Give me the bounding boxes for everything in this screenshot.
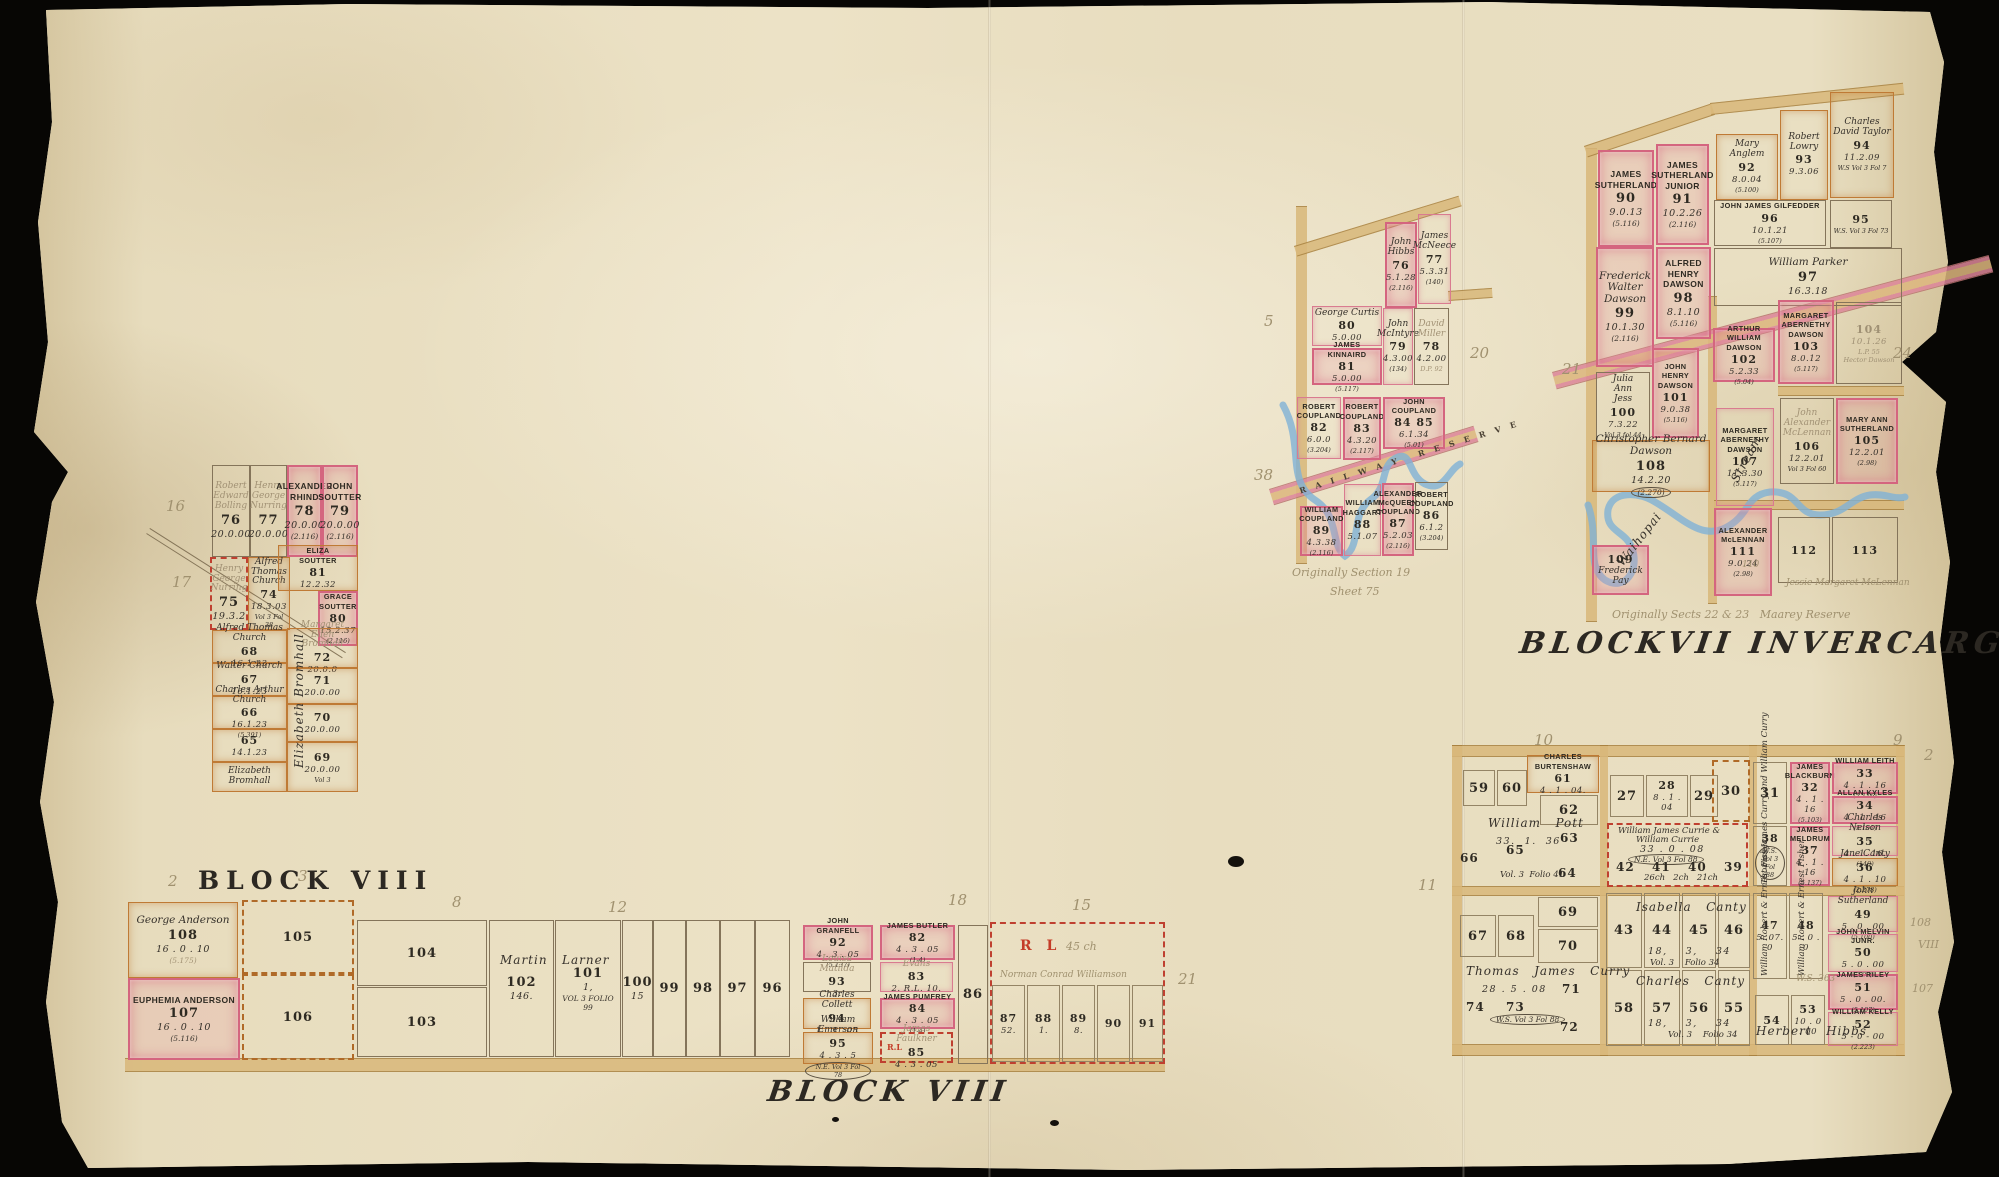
block-viii-grid-parcel-38: 38W.S. Vol 3 Fol 88 — [1753, 826, 1787, 886]
block-west-parcel-66: Charles Arthur Church6616.1.23(5.391) — [212, 696, 287, 729]
parcel-area: 5.2.03 — [1383, 531, 1413, 541]
parcel-owner: John Hibbs — [1388, 238, 1415, 258]
parcel-number: 68 — [241, 645, 258, 658]
parcel-number: 92 — [1738, 161, 1755, 174]
block-viii-strip-parcel-93: Louisa Matilda933. — [803, 962, 871, 992]
parcel-owner: WILLIAM COUPLAND — [1299, 505, 1344, 523]
block-viii-strip-parcel-96: 96 — [755, 920, 790, 1057]
map-label: Elizabeth Bromhall — [292, 633, 306, 768]
parcel-number: 95 — [1852, 213, 1869, 226]
parcel-number: 57 — [1652, 1001, 1672, 1016]
map-label: 15 — [1072, 896, 1091, 914]
parcel-number: 102 — [1731, 353, 1757, 366]
block-west-parcel-79: JOHN SOUTTER7920.0.00(2.116) — [322, 465, 358, 557]
block-viii-strip-parcel-103: 103 — [357, 987, 487, 1057]
parcel-number: 91 — [1139, 1017, 1156, 1030]
parcel-number: 85 — [908, 1046, 925, 1059]
block-viii-strip-parcel-104: 104 — [357, 920, 487, 986]
parcel-number: 83 — [1353, 422, 1370, 435]
map-label: 18 — [948, 891, 967, 909]
parcel-number: 30 — [1721, 784, 1741, 799]
block-viii-strip-parcel-90: 90 — [1097, 985, 1130, 1062]
map-label: 42 — [1616, 860, 1635, 874]
block-viii-grid-parcel-60: 60 — [1497, 770, 1527, 806]
parcel-area: 16 . 0 . 10 — [157, 1022, 211, 1033]
parcel-owner: ROBERT COUPLAND — [1297, 402, 1342, 420]
parcel-area: 10.2.26 — [1663, 208, 1703, 219]
block-west-parcel-81: ELIZA SOUTTER8112.2.32 — [278, 545, 358, 591]
parcel-number: 61 — [1554, 772, 1571, 785]
parcel-number: 34 — [1856, 799, 1873, 812]
map-label: 8 — [452, 893, 462, 911]
parcel-number: 53 — [1799, 1003, 1816, 1016]
parcel-owner: Walter Church — [216, 662, 282, 672]
map-label: 10 — [1534, 731, 1553, 749]
ink-speck — [1228, 856, 1244, 867]
parcel-owner: ALFRED HENRY DAWSON — [1659, 258, 1708, 290]
parcel-area: 4 . 1 . 10 — [1844, 875, 1887, 885]
parcel-note: (2.116) — [1669, 220, 1696, 229]
parcel-number: 99 — [659, 981, 679, 996]
parcel-note: (2.270) — [1631, 487, 1670, 498]
parcel-area: 8.0.04 — [1732, 175, 1762, 185]
parcel-area: 16.3.18 — [1788, 286, 1828, 297]
parcel-area: 14.1.23 — [232, 748, 268, 758]
map-label: 41 — [1652, 860, 1671, 874]
parcel-note: (3.204) — [1420, 534, 1444, 542]
parcel-note: (5.116) — [1612, 219, 1639, 228]
parcel-note: (2.116) — [1310, 549, 1334, 557]
parcel-area: 6.1.34 — [1399, 430, 1429, 440]
parcel-note: (2.116) — [291, 532, 318, 541]
parcel-area: 12.2.32 — [300, 580, 336, 590]
parcel-number: 45 — [1689, 923, 1709, 938]
ink-speck — [1050, 1120, 1059, 1126]
parcel-number: 108 — [168, 928, 198, 943]
block-viii-strip-parcel-83: Evans832. R.L. 10. — [880, 962, 953, 992]
parcel-number: 71 — [314, 674, 331, 687]
parcel-owner: WILLIAM KELLY — [1832, 1007, 1894, 1016]
parcel-owner: Henry George Nurring — [211, 565, 248, 595]
parcel-number: 82 — [909, 931, 926, 944]
map-label: Thomas James Curry — [1466, 964, 1630, 978]
block-viii-grid-parcel-70: 70 — [1538, 929, 1598, 963]
ink-speck — [832, 1117, 839, 1122]
parcel-owner: ROBERT COUPLAND — [1340, 402, 1385, 420]
parcel-owner: JAMES MELDRUM — [1790, 825, 1830, 843]
block-vii-parcel-102: ARTHUR WILLIAM DAWSON1025.2.33(5.04) — [1713, 328, 1775, 382]
map-label: 18, 3, 34 — [1648, 946, 1731, 957]
parcel-area: 5.1.28 — [1386, 273, 1416, 283]
block-viii-strip-parcel-108: George Anderson10816 . 0 . 10(5.175) — [128, 902, 238, 978]
block-vii-parcel-93: Robert Lowry939.3.06 — [1780, 110, 1828, 200]
parcel-note: (5.116) — [1664, 416, 1688, 424]
parcel-area: 20.0.00 — [249, 529, 289, 540]
heading-block-viii: BLOCK VIII — [198, 866, 433, 895]
parcel-number: 58 — [1614, 1001, 1634, 1016]
block-vii-parcel-113: 113 — [1832, 517, 1898, 583]
parcel-number: 67 — [1468, 929, 1488, 944]
block-vii-parcel-98: ALFRED HENRY DAWSON988.1.10(5.116) — [1656, 247, 1711, 339]
parcel-note: Vol 3 — [314, 776, 330, 784]
parcel-owner: Robert Lowry — [1788, 133, 1819, 153]
parcel-number: 86 — [963, 987, 983, 1002]
parcel-number: 103 — [1793, 340, 1819, 353]
parcel-owner: MARGARET ABERNETHY DAWSON — [1781, 311, 1830, 338]
block-vii-parcel-94: Charles David Taylor9411.2.09W.S Vol 3 F… — [1830, 92, 1894, 198]
block-section19-parcel-78: David Miller784.2.00D.P. 92 — [1414, 308, 1449, 385]
parcel-number: 36 — [1856, 861, 1873, 874]
block-section19-parcel-84 85: JOHN COUPLAND84 856.1.34(5.01) — [1383, 397, 1445, 449]
map-label: 12 — [608, 898, 627, 916]
parcel-number: 96 — [762, 981, 782, 996]
map-label: William Pott — [1488, 816, 1584, 830]
parcel-area: 15 — [631, 991, 644, 1002]
parcel-area: 4 . 1 . 16 — [1793, 795, 1827, 815]
parcel-number: 70 — [314, 711, 331, 724]
parcel-owner: David Miller — [1418, 320, 1445, 340]
parcel-owner: JAMES RILEY — [1836, 970, 1889, 979]
block-viii-grid-parcel-51: JAMES RILEY515 . 0 . 00.(5.107) — [1828, 974, 1898, 1010]
map-label: William Robert & Ernest Fisher — [1760, 839, 1770, 976]
block-viii-grid-parcel-37: JAMES MELDRUM374 . 1 . 16(5.137) — [1790, 826, 1830, 886]
parcel-number: 95 — [829, 1037, 846, 1050]
block-vii-parcel-97: William Parker9716.3.18 — [1714, 248, 1902, 306]
parcel-note: (2.116) — [1386, 542, 1410, 550]
parcel-owner: Robert Edward Bolling — [213, 482, 248, 512]
parcel-number: 69 — [1558, 905, 1578, 920]
parcel-number: 87 — [1000, 1012, 1017, 1025]
road-strip — [1778, 386, 1904, 396]
parcel-area: 12.2.01 — [1849, 448, 1885, 458]
parcel-owner: Jane Canty — [1840, 850, 1890, 860]
parcel-number: 78 — [294, 504, 314, 519]
parcel-number: 74 — [260, 588, 277, 601]
parcel-note: (2.116) — [1611, 334, 1638, 343]
parcel-area: 8. — [1074, 1026, 1083, 1036]
block-viii-strip-parcel-100: 10015 — [622, 920, 653, 1057]
map-label: Vol. 3 Folio 34 — [1668, 1030, 1737, 1040]
block-viii-grid-parcel-59: 59 — [1463, 770, 1495, 806]
block-section19-parcel-82: ROBERT COUPLAND826.0.0(3.204) — [1297, 397, 1341, 459]
parcel-owner: John McIntyre — [1377, 320, 1419, 340]
parcel-owner: JAMES SUTHERLAND — [1595, 169, 1658, 190]
parcel-note: (140) — [1426, 278, 1443, 286]
map-label: 5 — [1264, 312, 1274, 330]
parcel-area: 11.2.09 — [1844, 153, 1880, 163]
parcel-number: 98 — [693, 981, 713, 996]
parcel-number: 104 — [407, 946, 437, 961]
parcel-owner: JAMES SUTHERLAND JUNIOR — [1651, 160, 1714, 192]
parcel-area: 4.3.20 — [1347, 436, 1377, 446]
parcel-area: 20.0.00 — [211, 529, 251, 540]
parcel-area: 1. — [1039, 1026, 1048, 1036]
block-vii-parcel-95: 95W.S. Vol 3 Fol 73 — [1830, 200, 1892, 248]
parcel-area: 19.3.2 — [212, 611, 245, 622]
parcel-number: 76 — [1392, 259, 1409, 272]
block-viii-strip-parcel-99: 99 — [653, 920, 686, 1057]
parcel-number: 106 — [283, 1010, 313, 1025]
parcel-number: 88 — [1354, 518, 1371, 531]
map-label: 108 — [1910, 916, 1931, 929]
parcel-owner: CHARLES BURTENSHAW — [1529, 752, 1597, 770]
parcel-note: (2.116) — [326, 532, 353, 541]
parcel-number: 81 — [1338, 360, 1355, 373]
block-viii-strip-parcel-106: 106 — [242, 974, 354, 1060]
parcel-note: (2.223) — [1851, 1043, 1875, 1051]
block-vii-parcel-112: 112 — [1778, 517, 1830, 583]
map-label: R L — [1020, 938, 1061, 954]
parcel-area: 5.3.31 — [1419, 267, 1449, 277]
block-section19-parcel-77: James McNeece775.3.31(140) — [1418, 214, 1451, 304]
parcel-area: 8.1.10 — [1667, 307, 1700, 318]
block-viii-strip-parcel-98: 98 — [686, 920, 720, 1057]
parcel-note: W.S Vol 3 Fol 7 — [1838, 164, 1887, 172]
parcel-number: 51 — [1854, 981, 1871, 994]
parcel-note: W.S. Vol 3 Fol 73 — [1834, 227, 1889, 235]
map-label: 45 ch — [1066, 940, 1097, 953]
parcel-number: 103 — [407, 1015, 437, 1030]
parcel-owner: John Sutherland — [1830, 887, 1896, 907]
block-viii-strip-parcel-107: EUPHEMIA ANDERSON10716 . 0 . 10(5.116) — [128, 978, 240, 1060]
parcel-number: 97 — [1798, 270, 1818, 285]
parcel-number: 33 — [1856, 767, 1873, 780]
parcel-owner: George Curtis — [1315, 309, 1379, 319]
block-viii-grid-parcel-36: Jane Canty364 . 1 . 10(2.278) — [1832, 858, 1898, 886]
parcel-number: 100 — [622, 975, 652, 990]
parcel-number: 28 — [1658, 779, 1675, 792]
parcel-note: (3.204) — [1307, 446, 1331, 454]
map-label: Herbert Hibbs — [1756, 1024, 1867, 1038]
block-vii-parcel-104: 10410.1.26L.P. 55 Hector Dawson — [1836, 302, 1902, 384]
parcel-area: 4.3.00 — [1383, 354, 1413, 364]
map-label: 65 — [1506, 843, 1525, 857]
block-vii-parcel-91: JAMES SUTHERLAND JUNIOR9110.2.26(2.116) — [1656, 144, 1709, 245]
parcel-number: 104 — [1856, 323, 1882, 336]
parcel-owner: William Emerson — [805, 1016, 871, 1036]
parcel-number: 106 — [1794, 440, 1820, 453]
parcel-owner: JAMES KINNAIRD — [1315, 340, 1379, 358]
block-section19-parcel-79: John McIntyre794.3.00(134) — [1383, 308, 1413, 385]
parcel-area: 12.2.01 — [1789, 454, 1825, 464]
block-west-parcel-area: Elizabeth Bromhall — [212, 762, 287, 792]
parcel-owner: George Anderson — [137, 915, 230, 927]
parcel-number: 87 — [1389, 517, 1406, 530]
parcel-number: 89 — [1313, 524, 1330, 537]
parcel-owner: ARTHUR WILLIAM DAWSON — [1716, 324, 1772, 351]
parcel-area: 10.1.30 — [1605, 322, 1645, 333]
block-viii-grid-parcel-68: 68 — [1498, 915, 1534, 957]
map-label: W.S. 363 — [1796, 974, 1835, 984]
block-viii-grid-parcel-69: 69 — [1538, 897, 1598, 927]
parcel-number: 44 — [1652, 923, 1672, 938]
parcel-number: 90 — [1616, 191, 1636, 206]
parcel-owner: JOHN COUPLAND — [1386, 397, 1442, 415]
map-label: 18, 3, 34 — [1648, 1018, 1731, 1029]
map-label: Vol. 3 Folio 34 — [1650, 958, 1719, 968]
parcel-owner: JAMES PUMFREY — [883, 992, 951, 1001]
parcel-number: 60 — [1502, 781, 1522, 796]
block-section19-parcel-86: ROBERT COUPLAND866.1.2(3.204) — [1415, 482, 1448, 550]
parcel-owner: JAMES BUTLER — [887, 921, 949, 930]
parcel-number: 56 — [1689, 1001, 1709, 1016]
parcel-number: 66 — [241, 706, 258, 719]
parcel-number: 68 — [1506, 929, 1526, 944]
map-label: 39 — [1724, 860, 1743, 874]
parcel-owner: JOHN JAMES GILFEDDER — [1720, 201, 1820, 210]
parcel-number: 96 — [1761, 212, 1778, 225]
parcel-number: 98 — [1673, 291, 1693, 306]
map-label: 66 — [1460, 851, 1479, 865]
parcel-number: 97 — [727, 981, 747, 996]
map-label: Norman Conrad Williamson — [1000, 970, 1127, 980]
parcel-number: 80 — [1338, 319, 1355, 332]
parcel-owner: Elizabeth Bromhall — [214, 767, 285, 787]
parcel-note: N.E. Vol 3 Fol 78 — [805, 1062, 871, 1080]
parcel-note: (134) — [1389, 365, 1406, 373]
parcel-number: 102 — [506, 975, 536, 990]
parcel-area: 20.0.00 — [305, 688, 341, 698]
map-label: 72 — [1560, 1020, 1579, 1034]
parcel-owner: ROBERT COUPLAND — [1409, 490, 1454, 508]
block-west-parcel-75: Henry George Nurring7519.3.2 — [210, 557, 248, 630]
parcel-owner: GRACE SOUTTER — [319, 592, 357, 610]
parcel-area: 20.0.00 — [320, 520, 360, 531]
map-label: 2 — [168, 872, 178, 890]
parcel-owner: John Alexander McLennan — [1783, 409, 1831, 439]
parcel-number: 82 — [1310, 421, 1327, 434]
block-viii-strip-parcel-97: 97 — [720, 920, 755, 1057]
parcel-number: 100 — [1610, 406, 1636, 419]
parcel-owner: WILLIAM LEITH — [1835, 756, 1895, 765]
parcel-owner: Frederick Walter Dawson — [1599, 271, 1651, 306]
block-vii-parcel-108: Christopher Bernard Dawson10814.2.20(2.2… — [1592, 440, 1710, 492]
block-vii-parcel-103: MARGARET ABERNETHY DAWSON1038.0.12(5.117… — [1778, 300, 1834, 384]
parcel-number: 65 — [241, 734, 258, 747]
block-west-parcel-76: Robert Edward Bolling7620.0.00 — [212, 465, 250, 557]
parcel-area: 18.3.03 — [251, 602, 287, 612]
parcel-note: VOL 3 FOLIO 99 — [557, 994, 619, 1012]
block-viii-grid-parcel-47: 475. 07. 0 — [1753, 893, 1787, 979]
parcel-area: 9.0.13 — [1609, 207, 1642, 218]
parcel-note: (2.117) — [1350, 447, 1374, 455]
parcel-number: 86 — [1423, 509, 1440, 522]
block-viii-grid-parcel-50: JOHN MELVIN JUNR.505 . 0 . 00(2.92) — [1828, 934, 1898, 972]
map-label: 24 — [1893, 344, 1912, 362]
map-label: Charles Canty — [1636, 974, 1745, 988]
map-label: 40 — [1688, 860, 1707, 874]
parcel-area: 6.1.2 — [1419, 523, 1443, 533]
parcel-note: (5.117) — [1794, 365, 1818, 373]
parcel-number: 107 — [169, 1006, 199, 1021]
parcel-area: 4.3.38 — [1306, 538, 1336, 548]
block-west-parcel-65: 6514.1.23 — [212, 729, 287, 762]
block-vii-parcel-96: JOHN JAMES GILFEDDER9610.1.21(5.107) — [1714, 200, 1826, 246]
parcel-note: (5.100) — [1735, 186, 1759, 194]
parcel-number: 27 — [1617, 789, 1637, 804]
parcel-number: 90 — [1105, 1017, 1122, 1030]
block-viii-strip-parcel-105: 105 — [242, 900, 354, 974]
parcel-area: 6.0.0 — [1307, 435, 1331, 445]
block-section19-parcel-83: ROBERT COUPLAND834.3.20(2.117) — [1343, 397, 1381, 460]
map-label: 21 — [1178, 970, 1197, 988]
parcel-owner: Louisa Matilda — [805, 955, 869, 975]
parcel-owner: Julia Ann Jess — [1613, 375, 1634, 405]
parcel-owner: Frederick Pay — [1598, 567, 1643, 587]
parcel-note: (2.98) — [1733, 570, 1753, 578]
parcel-number: 93 — [828, 975, 845, 988]
parcel-area: 7.3.22 — [1608, 420, 1638, 430]
parcel-owner: ALLAN KYLES — [1837, 788, 1892, 797]
block-west-parcel-78: ALEXANDER RHIND7820.0.00(2.116) — [287, 465, 322, 557]
parcel-number: 92 — [829, 936, 846, 949]
map-label: 110 — [1742, 560, 1759, 570]
parcel-owner: Charles David Taylor — [1833, 118, 1891, 138]
parcel-number: 105 — [1854, 434, 1880, 447]
parcel-area: 8 . 1 . 04 — [1648, 793, 1686, 813]
parcel-number: 49 — [1854, 908, 1871, 921]
parcel-area: 4 . 3 . 05 — [895, 1060, 938, 1070]
parcel-owner: Alfred Thomas Church — [214, 624, 285, 644]
parcel-number: 83 — [908, 970, 925, 983]
parcel-owner: MARY ANN SUTHERLAND — [1840, 415, 1894, 433]
map-label: Vol. 3 Folio 41 — [1500, 870, 1564, 880]
map-label: 3 — [298, 867, 308, 885]
parcel-owner: Charles Collett — [805, 991, 869, 1011]
caption-block-viii-bottom: BLOCK VIII — [766, 1074, 1013, 1108]
parcel-area: 16 . 0 . 10 — [156, 944, 210, 955]
block-vii-parcel-101: JOHN HENRY DAWSON1019.0.38(5.116) — [1652, 348, 1699, 438]
road-strip — [1452, 745, 1462, 1056]
block-viii-grid-parcel-67: 67 — [1460, 915, 1496, 957]
parcel-number: 72 — [314, 651, 331, 664]
map-label: 107 — [1912, 982, 1933, 995]
map-label: 20 — [1470, 344, 1489, 362]
parcel-number: 76 — [221, 513, 241, 528]
parcel-note: (5.116) — [170, 1034, 197, 1043]
map-label: 9 — [1893, 731, 1903, 749]
parcel-number: 79 — [1389, 340, 1406, 353]
block-viii-strip-parcel-91: 91 — [1132, 985, 1163, 1062]
map-label: 26ch 2ch 21ch — [1644, 873, 1718, 883]
parcel-number: 101 — [1663, 391, 1689, 404]
parcel-owner: Charles Nelson — [1834, 814, 1896, 834]
parcel-number: 70 — [1558, 939, 1578, 954]
parcel-owner: Christopher Bernard Dawson — [1594, 434, 1708, 457]
parcel-number: 79 — [330, 504, 350, 519]
parcel-area: 9.0.38 — [1660, 405, 1690, 415]
parcel-note: D.P. 92 — [1420, 365, 1443, 373]
parcel-owner: JAMES BLACKBURN — [1785, 762, 1835, 780]
block-west-parcel-68: Alfred Thomas Church6816.1.23 — [212, 630, 287, 663]
block-viii-strip-parcel-88: 881. — [1027, 985, 1060, 1062]
parcel-note: (2.116) — [1389, 284, 1413, 292]
block-section19-parcel-89: WILLIAM COUPLAND894.3.38(2.116) — [1300, 506, 1343, 556]
parcel-area: 5.2.33 — [1729, 367, 1759, 377]
block-viii-strip-parcel-101: 1011,VOL 3 FOLIO 99 — [555, 920, 621, 1057]
block-viii-strip-parcel-102: 102146. — [489, 920, 554, 1057]
block-viii-grid-parcel-61: CHARLES BURTENSHAW614 . 1 . 04. — [1527, 755, 1599, 793]
map-label: 11 — [1418, 876, 1437, 894]
parcel-number: 84 85 — [1394, 416, 1433, 429]
block-vii-parcel-111: ALEXANDER McLENNAN1119.0.24(2.98) — [1714, 508, 1772, 596]
block-vii-parcel-92: Mary Anglem928.0.04(5.100) — [1716, 134, 1778, 200]
parcel-number: 99 — [1615, 306, 1635, 321]
map-label: William Robert & Ernest Fisher — [1797, 839, 1807, 976]
parcel-area: 1, — [583, 982, 593, 993]
map-label: 38 — [1254, 466, 1273, 484]
map-label: 2 — [1924, 746, 1934, 764]
